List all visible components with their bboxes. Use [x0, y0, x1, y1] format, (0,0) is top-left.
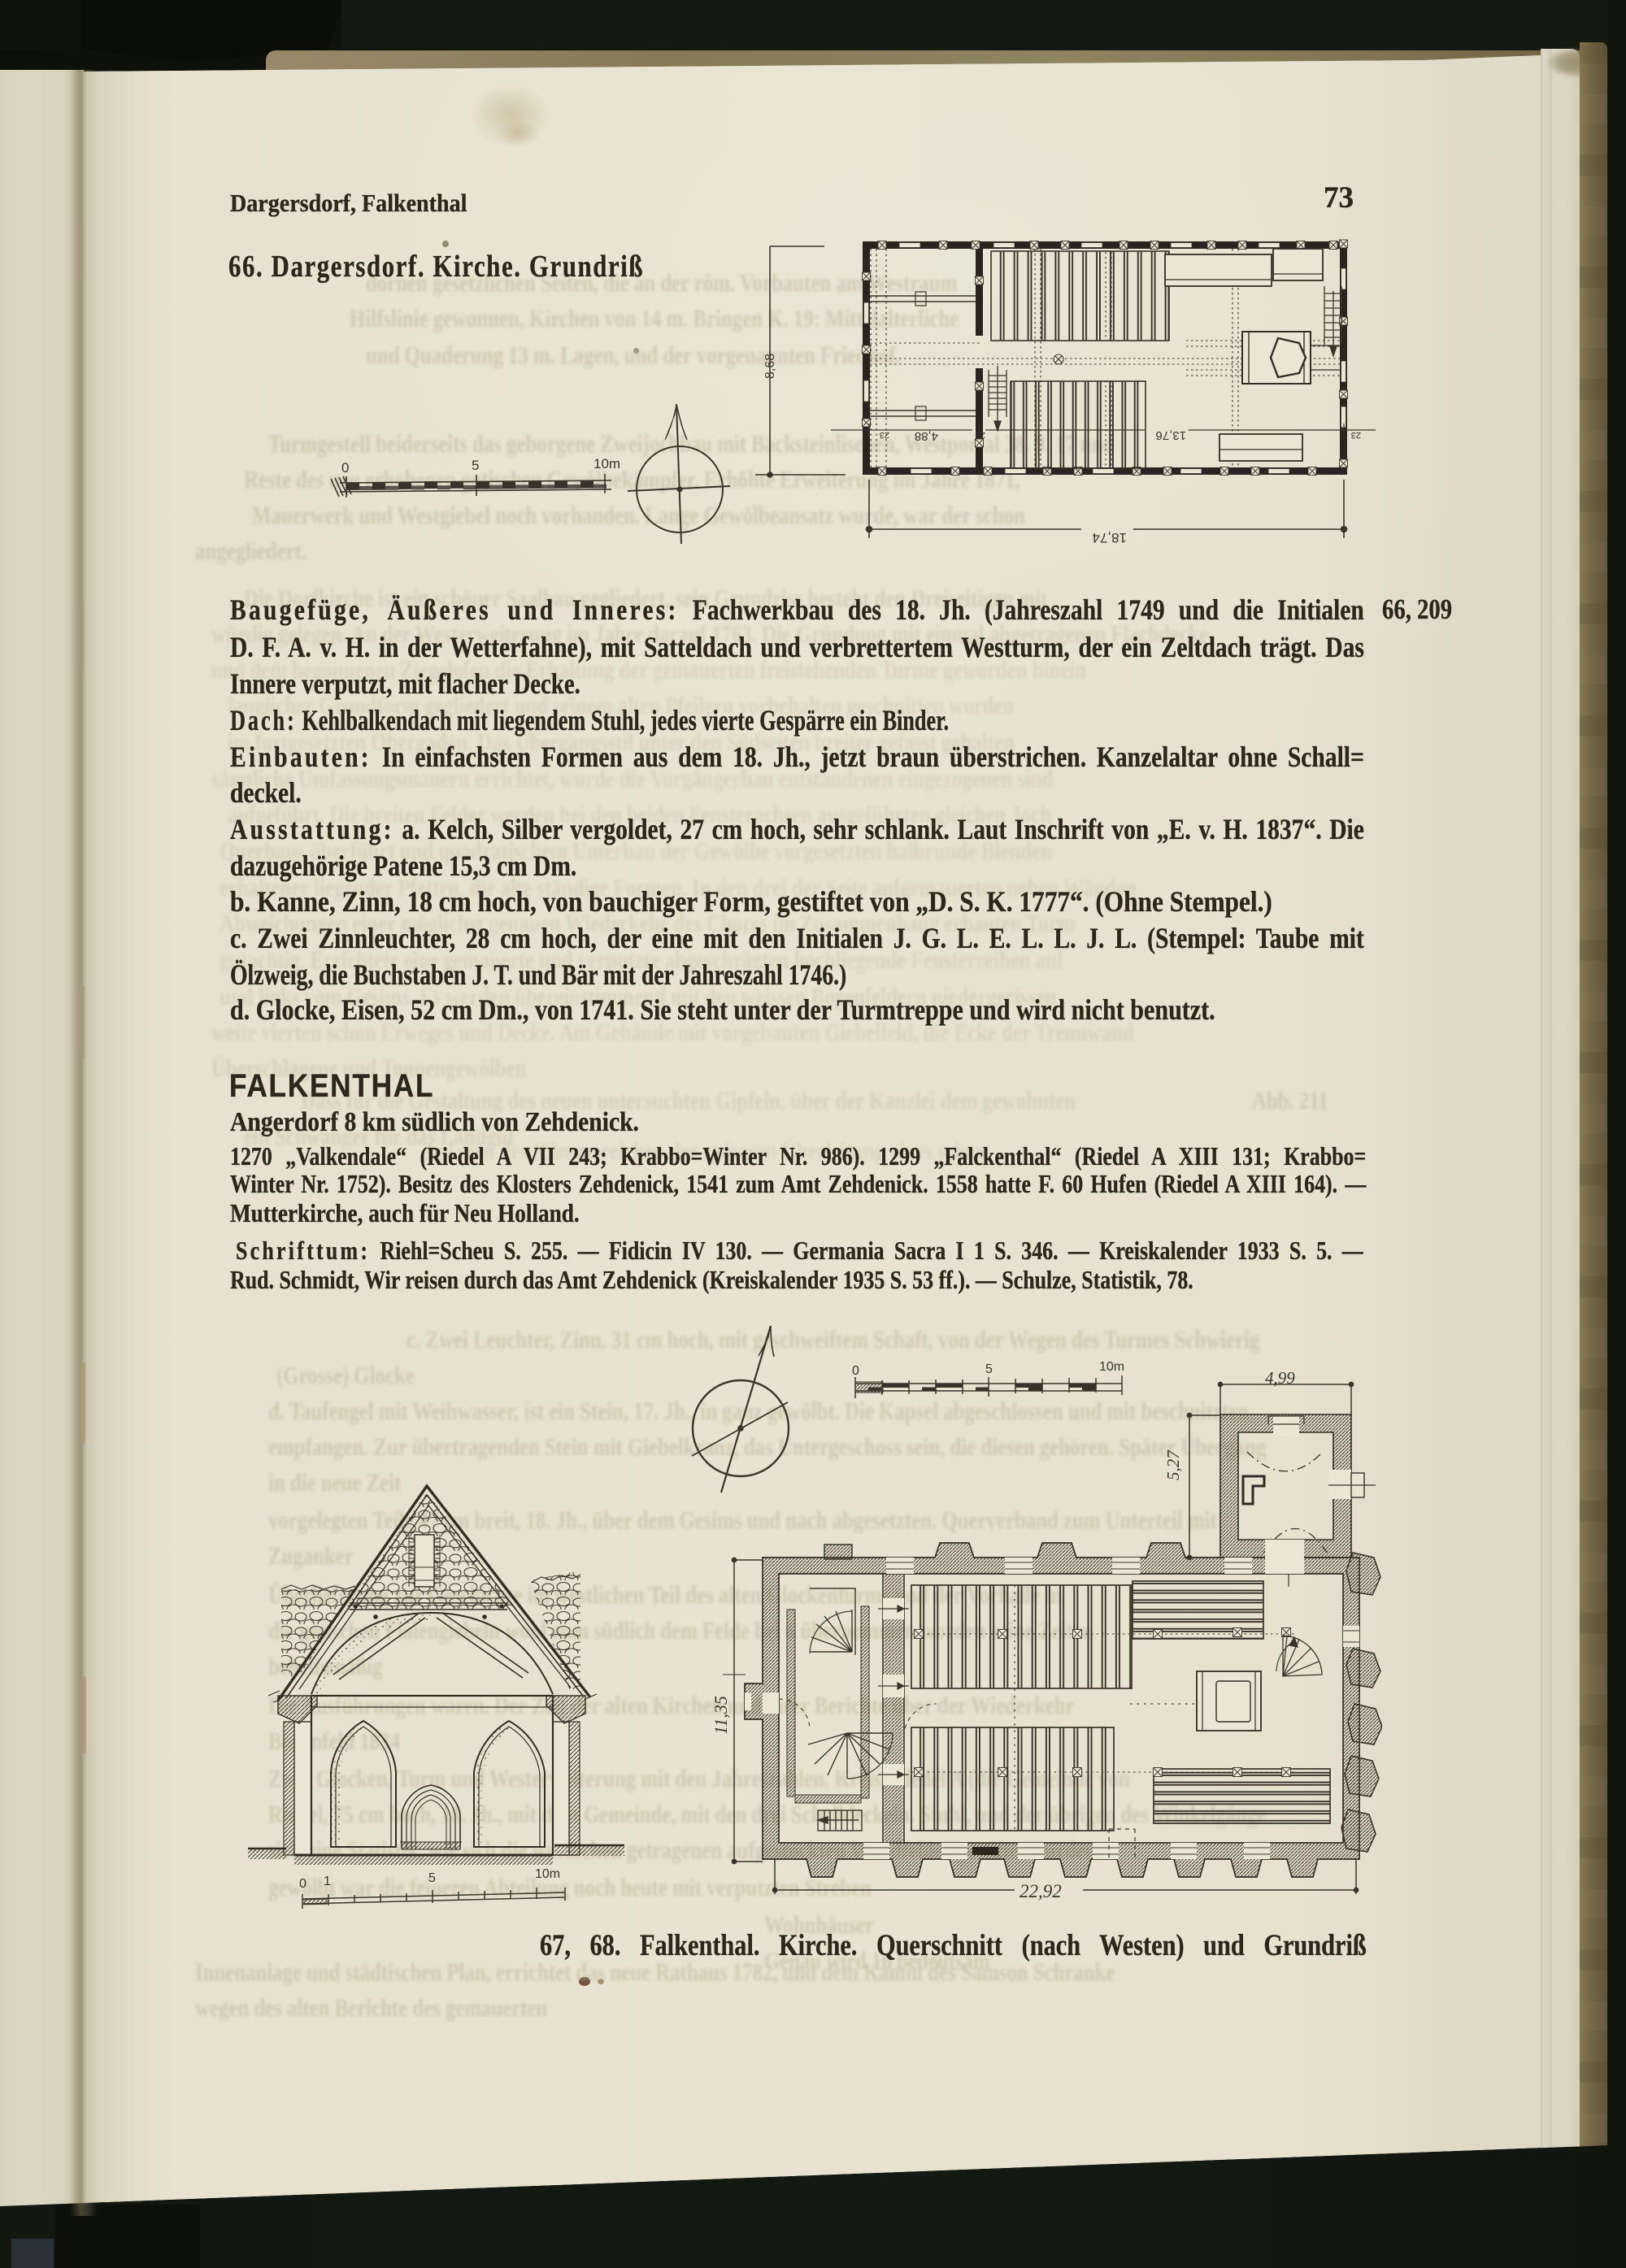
svg-text:5,27: 5,27	[1163, 1449, 1183, 1480]
svg-text:22,92: 22,92	[1020, 1881, 1062, 1901]
svg-text:23: 23	[880, 430, 889, 440]
svg-text:10m: 10m	[1099, 1360, 1124, 1374]
svg-text:11,35: 11,35	[711, 1696, 731, 1735]
svg-text:23: 23	[1351, 430, 1361, 440]
svg-text:5: 5	[428, 1871, 436, 1885]
svg-text:4,88: 4,88	[915, 429, 938, 443]
svg-text:10m: 10m	[535, 1867, 560, 1881]
svg-text:5: 5	[985, 1362, 993, 1376]
svg-text:5: 5	[472, 458, 479, 473]
svg-text:0: 0	[299, 1877, 307, 1891]
svg-text:0: 0	[852, 1364, 859, 1378]
svg-text:13,76: 13,76	[1155, 428, 1186, 442]
svg-text:1: 1	[324, 1875, 331, 1888]
svg-text:8,68: 8,68	[763, 354, 777, 379]
svg-text:4,99: 4,99	[1265, 1368, 1295, 1388]
svg-text:10m: 10m	[593, 456, 620, 471]
svg-text:0: 0	[341, 460, 349, 476]
svg-text:23: 23	[976, 430, 985, 440]
svg-text:18,74: 18,74	[1092, 530, 1127, 545]
